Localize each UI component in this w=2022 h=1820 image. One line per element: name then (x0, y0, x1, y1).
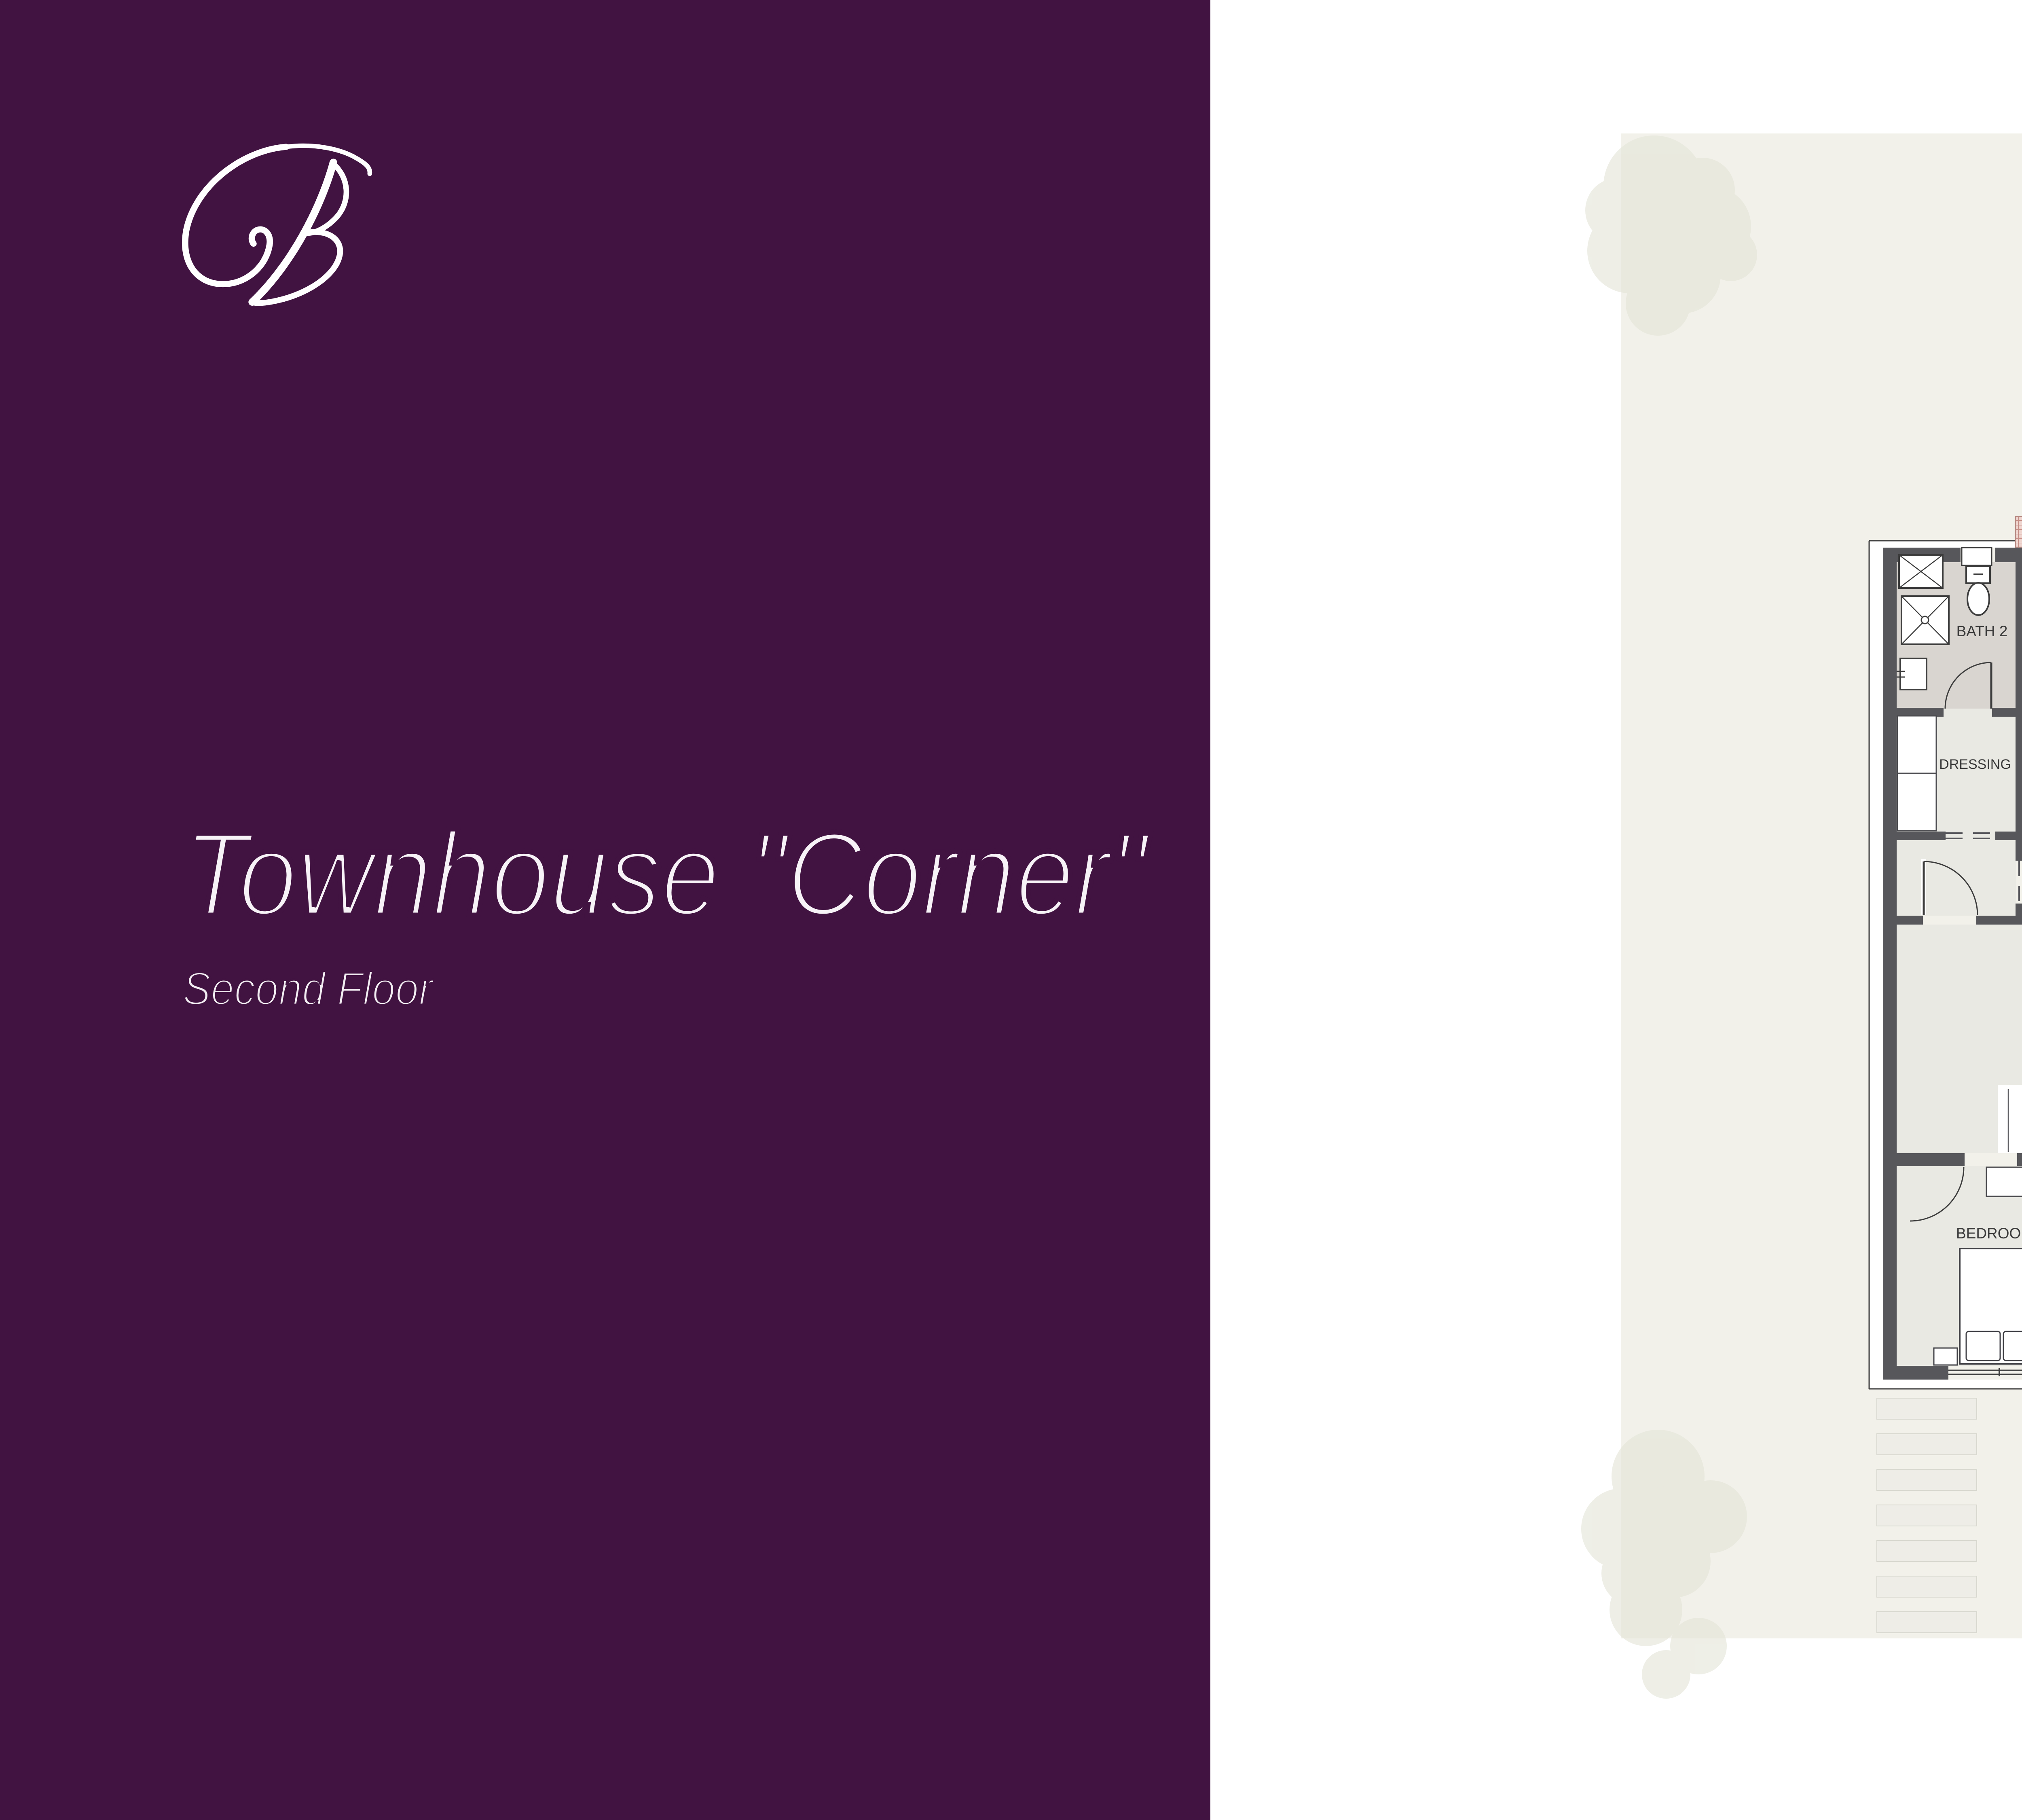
svg-text:DRESSING: DRESSING (1939, 757, 2011, 772)
svg-text:BEDROOM 1: BEDROOM 1 (1956, 1225, 2022, 1242)
svg-text:Second Floor: Second Floor (183, 963, 434, 1015)
svg-text:BATH 2: BATH 2 (1956, 623, 2008, 639)
svg-text:Townhouse "Corner": Townhouse "Corner" (184, 807, 1152, 941)
